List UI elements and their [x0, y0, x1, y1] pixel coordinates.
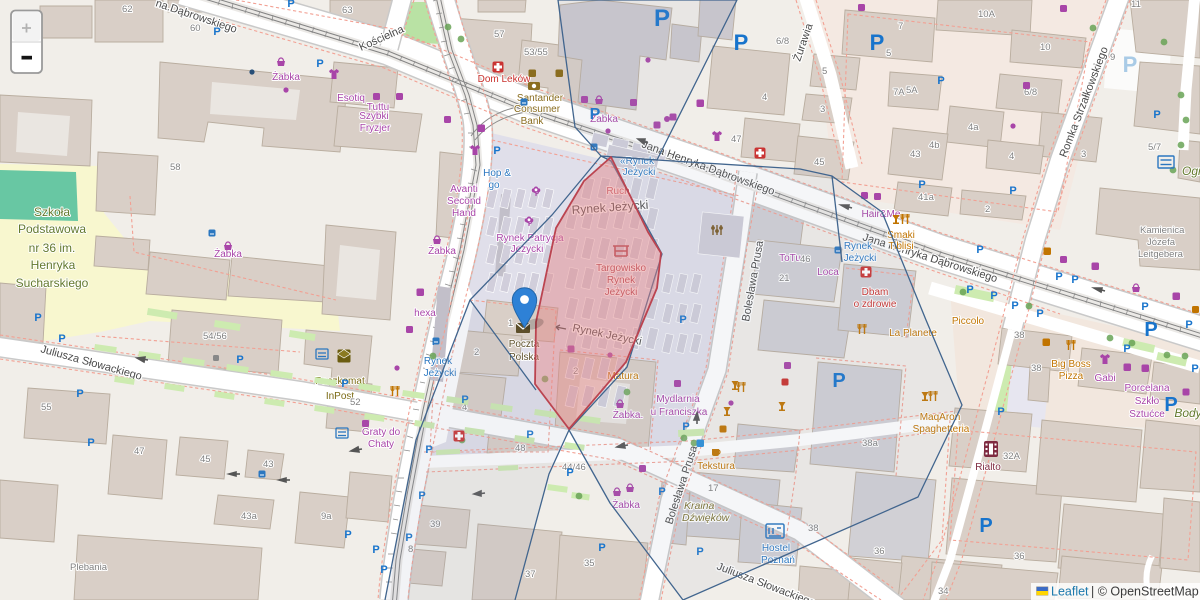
- svg-text:9: 9: [1110, 52, 1115, 63]
- svg-text:Gabi: Gabi: [1094, 373, 1115, 384]
- svg-text:Porcelana: Porcelana: [1124, 383, 1169, 394]
- svg-text:P: P: [918, 179, 925, 191]
- svg-text:60: 60: [190, 23, 201, 34]
- svg-text:P: P: [937, 75, 944, 87]
- svg-text:Ogr: Ogr: [1182, 164, 1200, 178]
- svg-text:P: P: [566, 467, 573, 479]
- svg-text:Sucharskiego: Sucharskiego: [16, 276, 89, 290]
- svg-text:nr 36 im.: nr 36 im.: [29, 241, 76, 255]
- svg-text:P: P: [979, 515, 992, 537]
- svg-text:P: P: [372, 544, 379, 556]
- svg-text:Pizza: Pizza: [1059, 371, 1084, 382]
- svg-text:4: 4: [1009, 151, 1014, 162]
- svg-text:43: 43: [263, 459, 274, 470]
- svg-text:P: P: [734, 30, 749, 55]
- svg-text:Żabka: Żabka: [428, 244, 456, 257]
- svg-text:P: P: [213, 26, 220, 38]
- svg-text:Big Boss: Big Boss: [1051, 359, 1090, 370]
- svg-text:Leaflet: Leaflet: [1051, 585, 1089, 599]
- svg-text:5/7: 5/7: [1148, 142, 1161, 153]
- svg-text:10: 10: [1040, 42, 1051, 53]
- svg-text:Piccolo: Piccolo: [952, 316, 985, 327]
- svg-text:9a: 9a: [321, 511, 332, 522]
- svg-text:| © OpenStreetMap: | © OpenStreetMap: [1091, 585, 1199, 599]
- svg-text:P: P: [1036, 308, 1043, 320]
- svg-text:Kamienica: Kamienica: [1140, 225, 1185, 236]
- svg-text:55: 55: [41, 402, 52, 413]
- svg-text:P: P: [1071, 274, 1078, 286]
- svg-text:P: P: [1055, 271, 1062, 283]
- svg-text:38: 38: [1031, 363, 1042, 374]
- svg-text:Szkło: Szkło: [1135, 396, 1160, 407]
- svg-text:P: P: [87, 437, 94, 449]
- svg-text:47: 47: [731, 134, 742, 145]
- svg-text:P: P: [341, 378, 348, 390]
- svg-text:Józefa: Józefa: [1147, 237, 1176, 248]
- svg-text:37: 37: [525, 569, 536, 580]
- svg-text:P: P: [1153, 109, 1160, 121]
- svg-text:P: P: [1144, 319, 1157, 341]
- svg-text:P: P: [287, 0, 294, 10]
- svg-text:P: P: [966, 284, 973, 296]
- svg-text:Dom Leków: Dom Leków: [478, 74, 532, 85]
- svg-text:P: P: [344, 529, 351, 541]
- svg-text:4: 4: [762, 92, 767, 103]
- svg-text:2: 2: [985, 204, 990, 215]
- svg-text:36: 36: [874, 546, 885, 557]
- svg-text:1: 1: [508, 318, 513, 329]
- svg-text:hexa: hexa: [414, 308, 436, 319]
- svg-text:5: 5: [822, 66, 827, 77]
- svg-text:Second: Second: [447, 196, 481, 207]
- svg-text:P: P: [236, 354, 243, 366]
- svg-text:Hand: Hand: [452, 208, 476, 219]
- svg-text:43a: 43a: [241, 511, 258, 522]
- svg-text:4b: 4b: [929, 140, 940, 151]
- svg-text:10A: 10A: [978, 9, 996, 20]
- svg-text:P: P: [1141, 301, 1148, 313]
- svg-text:P: P: [990, 290, 997, 302]
- svg-text:P: P: [1185, 319, 1192, 331]
- svg-text:47: 47: [134, 446, 145, 457]
- svg-text:P: P: [76, 388, 83, 400]
- svg-text:35: 35: [584, 558, 595, 569]
- svg-text:11: 11: [1131, 0, 1141, 10]
- svg-text:57: 57: [494, 29, 505, 40]
- svg-text:45: 45: [814, 157, 825, 168]
- svg-text:41a: 41a: [918, 192, 935, 203]
- svg-text:P: P: [976, 244, 983, 256]
- svg-text:Plebania: Plebania: [70, 562, 108, 573]
- svg-text:Bank: Bank: [521, 116, 545, 127]
- svg-text:Podstawowa: Podstawowa: [18, 222, 86, 236]
- svg-text:38: 38: [1014, 330, 1025, 341]
- svg-text:53/55: 53/55: [524, 47, 548, 58]
- svg-text:P: P: [1123, 52, 1138, 77]
- svg-text:Żabka: Żabka: [272, 70, 300, 83]
- svg-text:P: P: [493, 145, 500, 157]
- svg-text:7: 7: [898, 21, 903, 32]
- svg-text:P: P: [58, 333, 65, 345]
- svg-text:52: 52: [350, 397, 361, 408]
- svg-text:Szkoła: Szkoła: [34, 205, 70, 219]
- svg-text:36: 36: [1014, 551, 1025, 562]
- svg-text:go: go: [488, 180, 500, 191]
- svg-text:P: P: [1164, 394, 1177, 416]
- svg-text:P: P: [380, 564, 387, 576]
- svg-text:Szybki: Szybki: [359, 111, 388, 122]
- svg-text:P: P: [1191, 363, 1198, 375]
- svg-text:62: 62: [122, 4, 133, 15]
- svg-text:5A: 5A: [906, 85, 918, 96]
- svg-text:P: P: [870, 30, 885, 55]
- svg-text:5: 5: [886, 48, 891, 59]
- svg-text:63: 63: [342, 5, 353, 16]
- svg-text:45: 45: [200, 454, 211, 465]
- svg-text:4a: 4a: [968, 122, 979, 133]
- svg-text:P: P: [997, 406, 1004, 418]
- svg-text:P: P: [598, 542, 605, 554]
- svg-text:Body: Body: [1174, 406, 1200, 420]
- svg-text:Chaty: Chaty: [368, 439, 394, 450]
- svg-text:Esotiq: Esotiq: [337, 93, 365, 104]
- svg-text:P: P: [1011, 300, 1018, 312]
- svg-text:P: P: [316, 58, 323, 70]
- svg-text:Avanti: Avanti: [450, 184, 478, 195]
- svg-text:3: 3: [820, 104, 825, 115]
- svg-text:7A: 7A: [893, 87, 905, 98]
- svg-text:6/8: 6/8: [776, 36, 789, 47]
- svg-text:Fryzjer: Fryzjer: [360, 123, 391, 134]
- svg-text:34: 34: [938, 586, 949, 597]
- svg-text:Rialto: Rialto: [975, 462, 1001, 473]
- svg-text:Consumer: Consumer: [514, 104, 561, 115]
- svg-text:P: P: [1123, 343, 1130, 355]
- svg-text:Hop &: Hop &: [483, 168, 511, 179]
- svg-text:32A: 32A: [1003, 451, 1021, 462]
- svg-text:Henryka: Henryka: [31, 258, 76, 272]
- svg-text:P: P: [34, 312, 41, 324]
- svg-text:3: 3: [1081, 149, 1086, 160]
- svg-text:Leitgebera: Leitgebera: [1138, 249, 1184, 260]
- svg-text:43: 43: [910, 149, 921, 160]
- svg-text:P: P: [1009, 185, 1016, 197]
- svg-text:Graty do: Graty do: [362, 427, 401, 438]
- svg-text:58: 58: [170, 162, 181, 173]
- svg-text:Sztućce: Sztućce: [1129, 409, 1165, 420]
- svg-text:54/56: 54/56: [203, 331, 227, 342]
